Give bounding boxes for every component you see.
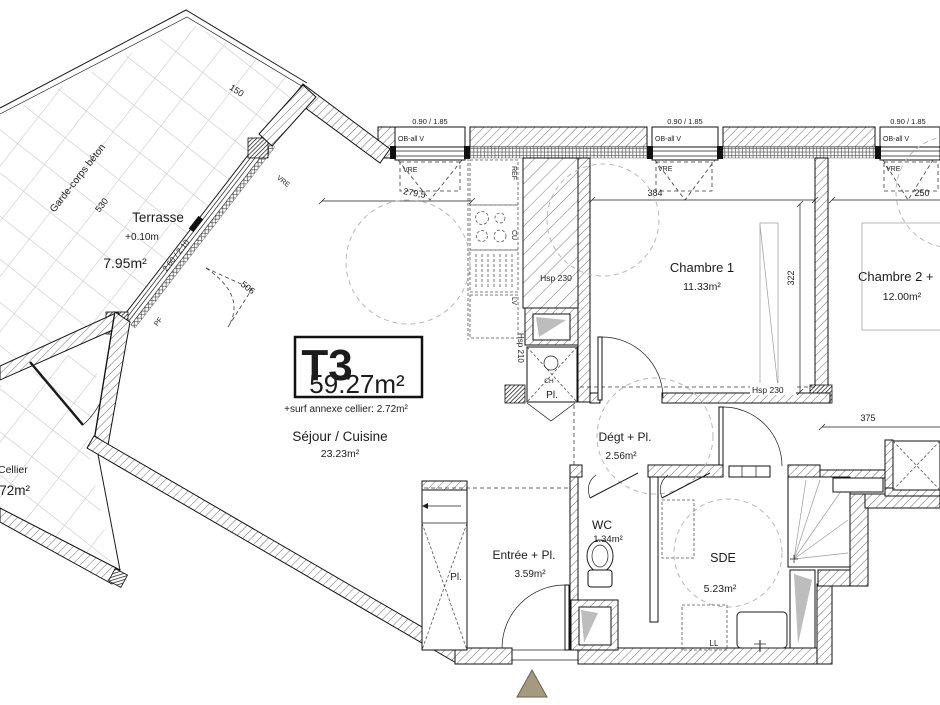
degagement-name: Dégt + Pl. <box>598 430 651 444</box>
chambre1-area: 11.33m² <box>683 281 721 293</box>
technical-shaft <box>523 158 578 308</box>
water-heater-closet: CH Pl. <box>527 347 577 421</box>
column-kitchen <box>505 385 525 403</box>
degagement-area: 2.56m² <box>605 451 637 462</box>
entrance-door <box>502 585 569 650</box>
sink <box>470 250 518 292</box>
dim-279: 279,5 <box>403 186 427 200</box>
floor-plan-page: Garde-corps béton 530 150 506 Terrasse +… <box>0 0 940 705</box>
vre-label: VRE <box>403 167 418 174</box>
water-heater-label: CH <box>544 378 554 385</box>
dim-250: 250 <box>914 188 929 198</box>
terrasse-name: Terrasse <box>132 210 184 225</box>
wc-name: WC <box>592 518 612 532</box>
entree-closet: Pl. <box>422 481 467 650</box>
sde-door <box>719 407 782 466</box>
vre-label-terrace: VRE <box>275 175 291 190</box>
unit-annex: +surf annexe cellier: 2.72m² <box>284 404 408 415</box>
window-size-label: 0.90 / 1.85 <box>890 117 925 126</box>
chambre2-area: 12.00m² <box>883 291 922 303</box>
unit-area: 59.27m² <box>309 369 405 399</box>
washbasin <box>737 612 787 652</box>
hsp210-label: Hsp 210 <box>516 333 525 363</box>
sde-area: 5.23m² <box>704 583 737 595</box>
dim-506: 506 <box>239 279 257 296</box>
closet-label: Pl. <box>546 390 558 401</box>
chambre1-wardrobe <box>760 223 778 390</box>
terrace-tiles <box>0 24 304 372</box>
dishwasher-label: LV <box>510 297 517 305</box>
window-1: 0.90 / 1.85 OB-all V VRE <box>390 117 470 200</box>
sejour-name: Séjour / Cuisine <box>292 429 387 444</box>
washing-machine-label: LL <box>710 639 719 648</box>
niche-right <box>833 478 883 492</box>
vre-label: VRE <box>658 166 673 173</box>
fridge-label: REF <box>510 166 517 180</box>
dim-322: 322 <box>786 270 796 285</box>
terrace: Garde-corps béton 530 150 506 Terrasse +… <box>0 10 307 372</box>
chambre2-name: Chambre 2 + <box>858 269 934 284</box>
wall-diagonal-long <box>87 436 465 664</box>
duct-niche-kitchen <box>525 308 578 345</box>
hsp230-label-shaft: Hsp 230 <box>540 273 572 283</box>
window-size-label: 0.90 / 1.85 <box>412 117 447 126</box>
terrasse-area: 7.95m² <box>103 255 147 271</box>
pf-label: PF <box>153 316 164 327</box>
cooktop <box>470 205 518 250</box>
cellier-name: Cellier <box>0 464 28 476</box>
dim-375: 375 <box>860 413 875 423</box>
duct-sde <box>790 570 815 648</box>
wall-block-top <box>248 138 268 158</box>
chambre1-name: Chambre 1 <box>670 260 734 275</box>
entrance-marker <box>517 670 547 697</box>
window-swing-dashes <box>206 268 252 327</box>
toilet <box>587 540 613 587</box>
entree-name: Entrée + Pl. <box>492 548 555 562</box>
window-size-label: 0.90 / 1.85 <box>667 117 702 126</box>
entree-area: 3.59m² <box>514 569 546 580</box>
washing-machine: LL <box>682 605 727 650</box>
ob-all-v-label: OB-all V <box>883 136 909 143</box>
floor-plan-drawing: Garde-corps béton 530 150 506 Terrasse +… <box>0 0 940 705</box>
chambre2-closet <box>893 441 940 490</box>
hsp230-label-corridor: Hsp 230 <box>752 385 784 395</box>
kitchen: REF CU LV Hsp 210 Hsp 230 CH Pl. <box>468 158 578 421</box>
cooktop-label: CU <box>510 230 517 240</box>
cellier-area: 2.72m² <box>0 483 31 498</box>
terrasse-level: +0.10m <box>125 232 159 243</box>
unit-label-box: T3 59.27m² +surf annexe cellier: 2.72m² <box>284 337 422 415</box>
vre-label: VRE <box>886 166 901 173</box>
towel-radiator <box>729 466 770 477</box>
ob-all-v-label: OB-all V <box>655 136 681 143</box>
closet-label: Pl. <box>450 572 462 583</box>
sejour-area: 23.23m² <box>321 448 360 460</box>
duct-niche-wc <box>571 600 618 650</box>
sde-dashed-recess <box>662 500 694 558</box>
folding-doors <box>527 403 575 421</box>
chambre1-door <box>598 337 663 400</box>
sde-name: SDE <box>710 551 736 565</box>
ob-all-v-label: OB-all V <box>398 136 424 143</box>
